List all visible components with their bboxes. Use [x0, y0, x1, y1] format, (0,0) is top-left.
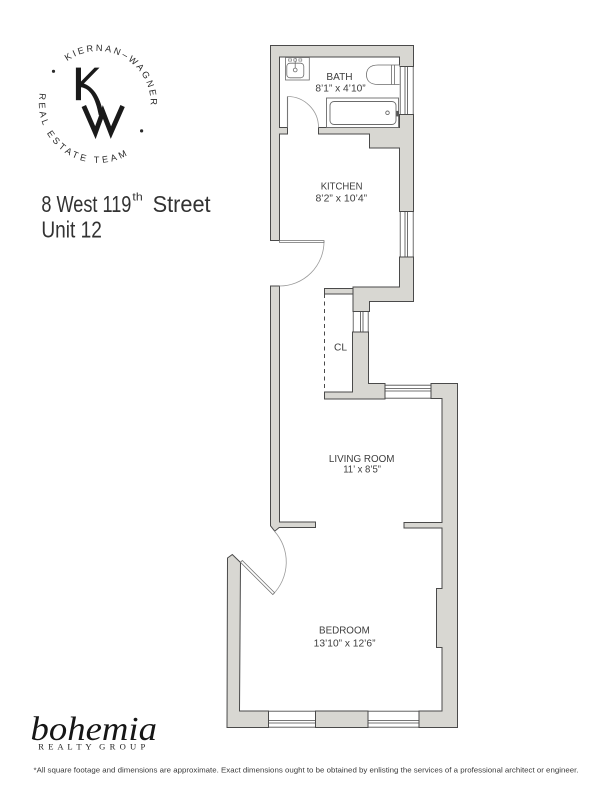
svg-text:13’10” x 12’6”: 13’10” x 12’6”	[314, 639, 376, 650]
svg-text:*All square footage and dimens: *All square footage and dimensions are a…	[34, 766, 579, 775]
svg-text:11’ x 8’5”: 11’ x 8’5”	[343, 465, 381, 476]
svg-text:BATH: BATH	[326, 72, 352, 83]
svg-text:KITCHEN: KITCHEN	[321, 181, 363, 192]
svg-text:Unit 12: Unit 12	[41, 217, 102, 243]
svg-text:8 West 119: 8 West 119	[41, 191, 131, 217]
svg-text:Street: Street	[153, 191, 212, 217]
svg-text:CL: CL	[334, 342, 347, 353]
svg-text:LIVING ROOM: LIVING ROOM	[329, 454, 395, 465]
svg-text:BEDROOM: BEDROOM	[319, 625, 370, 636]
svg-text:8’2” x 10’4”: 8’2” x 10’4”	[316, 194, 368, 205]
svg-text:R E A L T Y G R O U P: R E A L T Y G R O U P	[38, 742, 145, 752]
svg-text:8’1” x 4’10”: 8’1” x 4’10”	[315, 83, 366, 94]
svg-text:th: th	[132, 192, 142, 204]
